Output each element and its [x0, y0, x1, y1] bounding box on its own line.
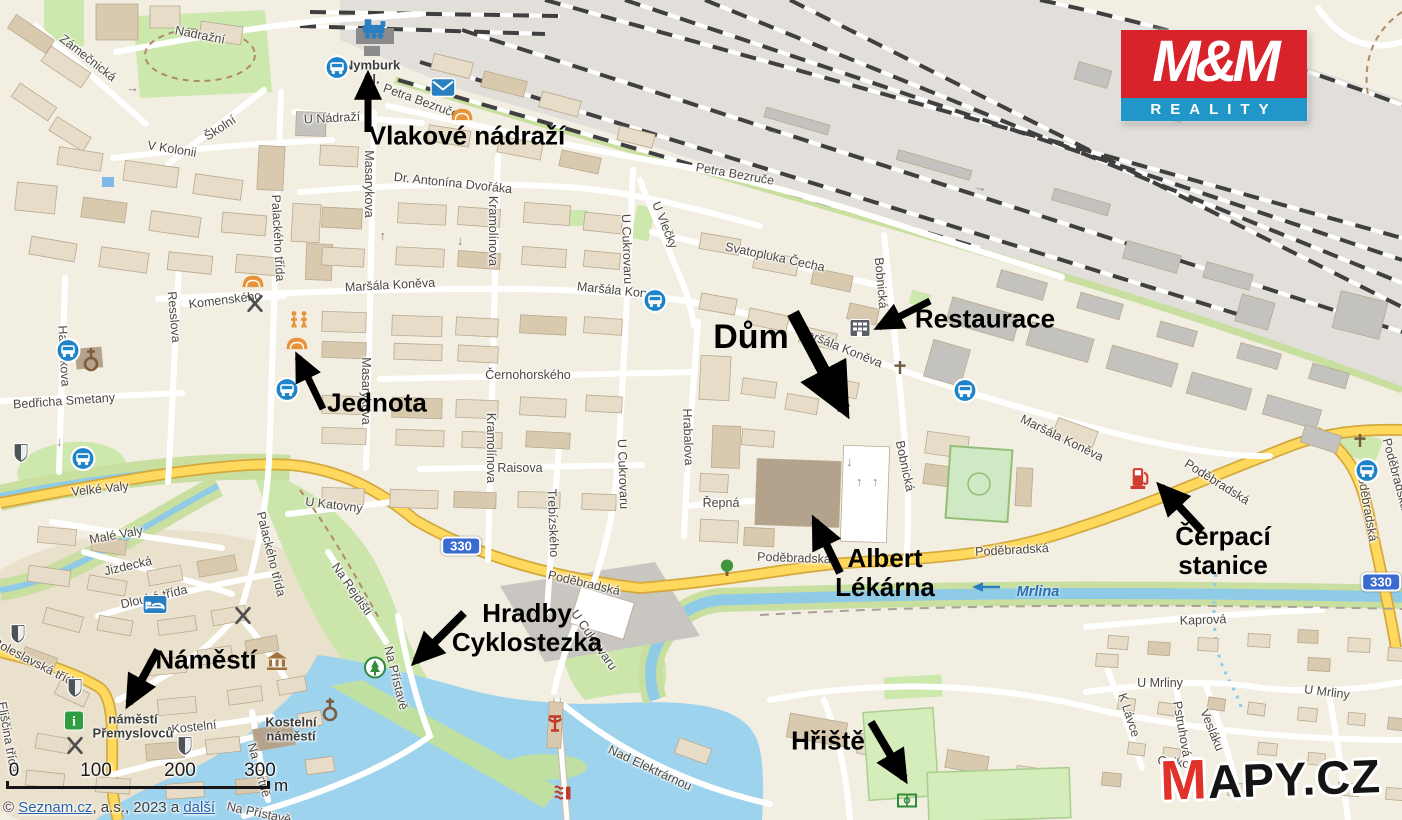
church-icon[interactable]	[82, 347, 100, 377]
svg-text:→: →	[373, 230, 388, 243]
water-label: Mrlina	[1017, 584, 1060, 600]
monument-icon[interactable]	[176, 735, 194, 762]
post-icon[interactable]	[430, 78, 456, 103]
annotation-hradby-cyklostezka: HradbyCyklostezka	[452, 599, 602, 657]
area-label: Kostelnínáměstí	[265, 716, 316, 745]
mm-logo-text: M&M	[1121, 30, 1307, 98]
museum-icon[interactable]	[265, 651, 289, 676]
street-label: Masarykova	[362, 150, 376, 217]
scale-tick: 300	[244, 760, 276, 782]
restaurant-icon[interactable]	[65, 736, 85, 761]
annotation-dum: Dům	[713, 318, 789, 356]
annotation-jednota: Jednota	[327, 388, 427, 417]
church-icon[interactable]	[321, 697, 339, 727]
street-label: Poděbradská	[757, 550, 831, 567]
street-label: Kramolínova	[484, 413, 498, 483]
bus-icon[interactable]	[643, 288, 668, 318]
annotation-hriste: Hřiště	[791, 726, 865, 755]
monument-icon[interactable]	[9, 623, 27, 650]
annotation-namesti: Náměstí	[155, 645, 256, 674]
street-label: Řepná	[703, 496, 740, 510]
info-icon[interactable]: i	[64, 711, 84, 736]
park-icon[interactable]	[364, 657, 386, 684]
scale-tick: 100	[80, 760, 112, 782]
bus-icon[interactable]	[953, 378, 978, 408]
shop-icon[interactable]	[450, 105, 475, 127]
street-label: Kaprová	[1179, 612, 1226, 628]
svg-text:→: →	[126, 80, 139, 95]
street-label: Raisova	[497, 461, 542, 475]
bus-icon[interactable]	[1355, 458, 1380, 488]
fuel-icon[interactable]	[1130, 466, 1151, 494]
attribution-middle: , a.s., 2023 a	[92, 799, 183, 816]
svg-text:i: i	[72, 715, 76, 730]
attribution-copyright: ©	[3, 799, 18, 816]
monument-icon[interactable]	[12, 442, 30, 469]
bus-icon[interactable]	[71, 446, 96, 476]
svg-text:↓: ↓	[846, 454, 853, 469]
bus-icon[interactable]	[325, 55, 350, 85]
street-label: U Nádraží	[304, 110, 361, 127]
mapy-logo-rest: APY.CZ	[1207, 749, 1382, 808]
playground-icon[interactable]	[287, 310, 311, 335]
train-icon[interactable]	[361, 17, 389, 47]
svg-text:↑: ↑	[856, 474, 863, 489]
shop-icon[interactable]	[285, 334, 310, 356]
sports-icon[interactable]	[897, 794, 917, 813]
annotation-albert-lekarna: AlbertLékárna	[835, 544, 935, 602]
area-label: Nymburkhl.	[344, 59, 400, 88]
svg-text:→: →	[455, 235, 470, 248]
street-label: U Cukrovaru	[615, 439, 631, 510]
scale-bar-line	[6, 786, 270, 789]
harbor-icon[interactable]	[546, 714, 564, 741]
svg-text:↑: ↑	[872, 474, 879, 489]
scale-tick: 0	[9, 760, 20, 782]
street-label: Trebízského	[545, 489, 561, 558]
hotel-icon[interactable]	[142, 595, 168, 619]
route-badge: 330	[441, 537, 481, 556]
mm-reality-logo: M&M REALITY	[1121, 30, 1307, 121]
svg-text:→: →	[54, 436, 69, 449]
restaurant-icon[interactable]	[233, 606, 253, 631]
street-label: Černohorského	[485, 368, 570, 382]
bus-icon[interactable]	[56, 338, 81, 368]
weir-icon[interactable]	[553, 784, 573, 807]
street-label: U Cukrovaru	[619, 214, 635, 285]
attribution-seznam-link[interactable]: Seznam.cz	[18, 799, 92, 816]
scale-tick: 200	[164, 760, 196, 782]
attribution-more-link[interactable]: další	[183, 799, 215, 816]
shop-icon[interactable]	[241, 272, 266, 294]
map-attribution: © Seznam.cz, a.s., 2023 a další	[3, 799, 215, 816]
monument-icon[interactable]	[66, 677, 84, 704]
base-map-graphics: ↑↑↓ → → → → → →	[0, 0, 1402, 820]
cross-icon[interactable]	[894, 360, 907, 380]
tree-icon[interactable]	[719, 558, 736, 583]
building-icon[interactable]	[849, 317, 871, 344]
street-label: Hrabalova	[680, 408, 696, 465]
restaurant-icon[interactable]	[245, 294, 265, 319]
mapy-cz-logo[interactable]: MAPY.CZ	[1159, 740, 1382, 813]
area-label: náměstíPřemyslovců	[93, 713, 174, 742]
route-badge: 330	[1361, 573, 1401, 592]
flow-arrow-icon[interactable]	[970, 580, 1002, 598]
mapy-logo-m: M	[1159, 747, 1209, 812]
mm-logo-reality-text: REALITY	[1121, 98, 1307, 121]
annotation-cerpaci-stanice: Čerpacístanice	[1175, 522, 1270, 580]
map-canvas[interactable]: ↑↑↓ → → → → → → NádražníZámečnickáŠkolní…	[0, 0, 1402, 820]
cross-icon[interactable]	[1354, 433, 1367, 453]
annotation-restaurace: Restaurace	[915, 304, 1055, 333]
bus-icon[interactable]	[275, 377, 300, 407]
street-label: U Mrliny	[1137, 676, 1183, 690]
street-label: Kramolínova	[486, 196, 500, 266]
